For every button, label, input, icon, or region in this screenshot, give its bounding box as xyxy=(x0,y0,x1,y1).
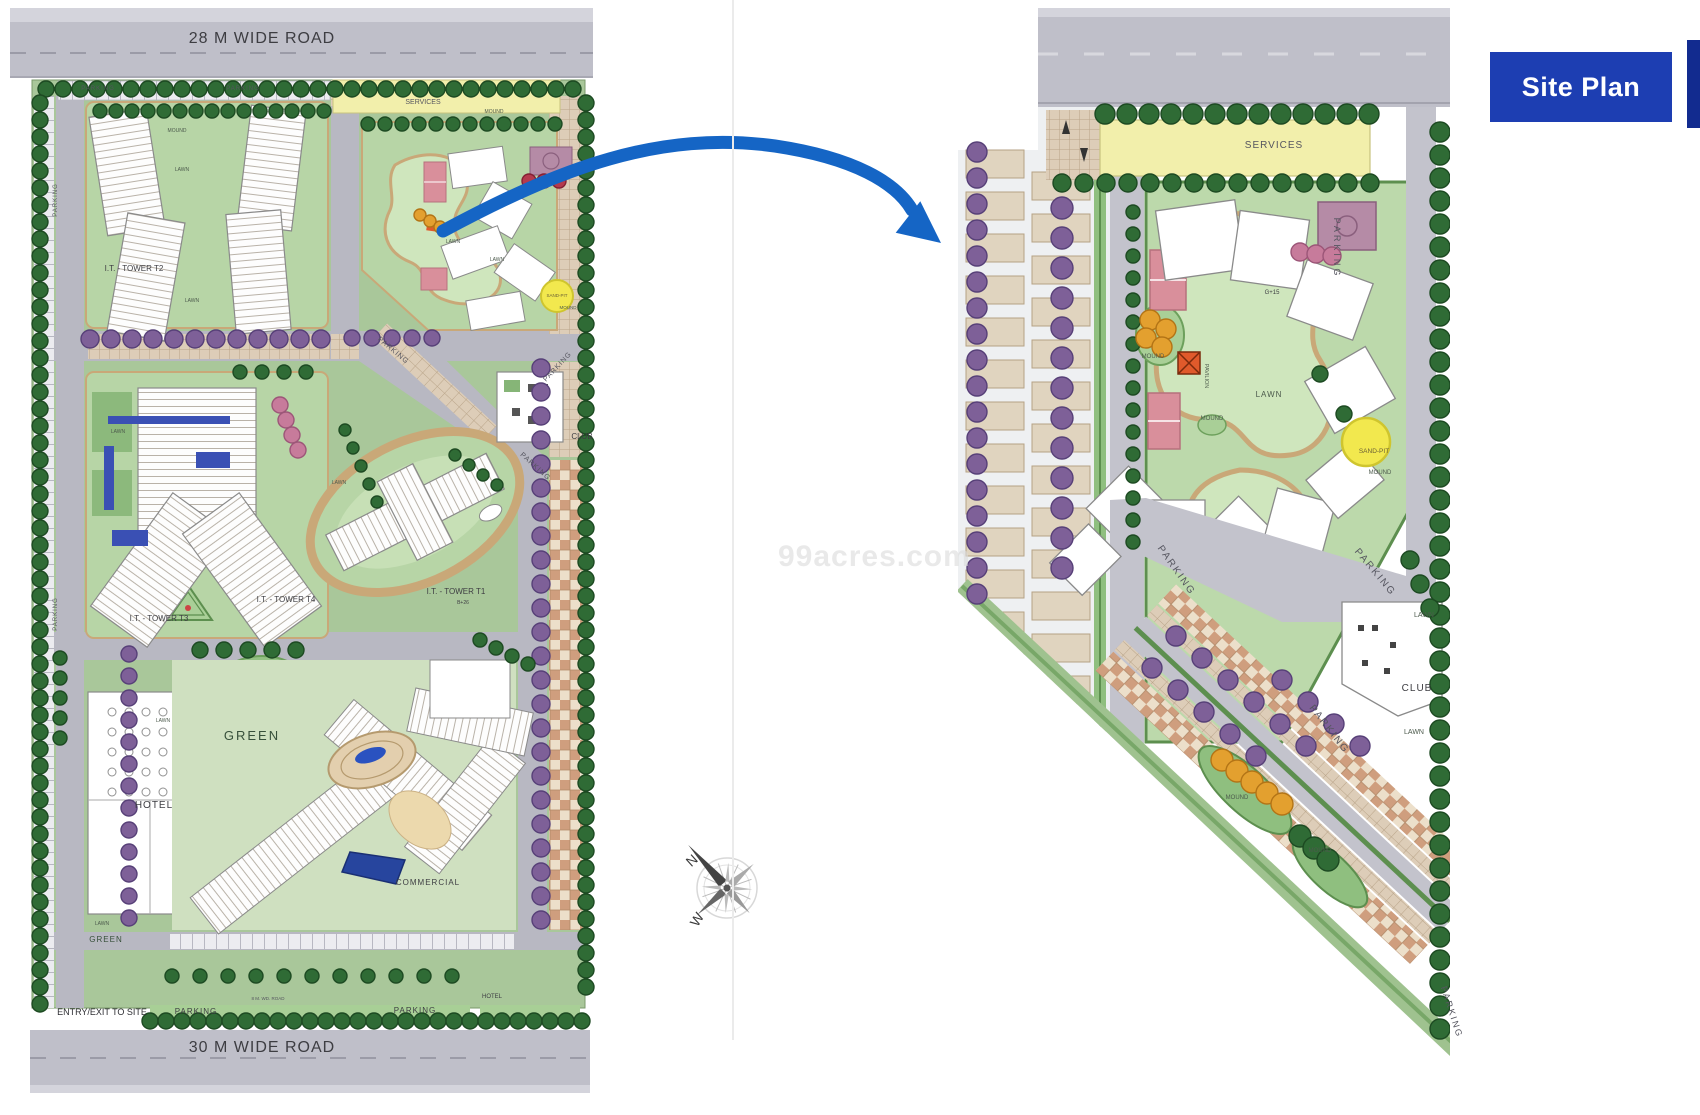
tree-icon xyxy=(1411,575,1429,593)
tree-icon xyxy=(1430,168,1450,188)
basketball-court xyxy=(1318,202,1376,250)
tree-icon xyxy=(395,81,411,97)
tree-icon xyxy=(121,866,137,882)
tree-icon xyxy=(967,246,987,266)
tree-icon xyxy=(53,671,67,685)
tree-icon xyxy=(1168,680,1188,700)
tree-icon xyxy=(32,877,48,893)
tree-icon xyxy=(347,442,359,454)
tree-icon xyxy=(221,969,235,983)
tree-icon xyxy=(531,81,547,97)
map-label: SERVICES xyxy=(1245,140,1303,151)
tree-icon xyxy=(1218,670,1238,690)
tree-icon xyxy=(1271,793,1293,815)
map-label: CLUB xyxy=(1402,683,1433,694)
tree-icon xyxy=(32,231,48,247)
tree-icon xyxy=(532,767,550,785)
tree-icon xyxy=(578,282,594,298)
tree-icon xyxy=(32,163,48,179)
tree-icon xyxy=(310,81,326,97)
tree-icon xyxy=(32,996,48,1012)
tree-icon xyxy=(463,459,475,471)
commercial-complex xyxy=(172,660,533,934)
tree-icon xyxy=(32,588,48,604)
tree-icon xyxy=(395,117,409,131)
table-icon xyxy=(142,748,150,756)
tree-icon xyxy=(318,1013,334,1029)
tree-icon xyxy=(532,407,550,425)
tree-icon xyxy=(32,401,48,417)
tree-icon xyxy=(1430,122,1450,142)
tree-icon xyxy=(253,104,267,118)
tree-icon xyxy=(1246,746,1266,766)
tree-icon xyxy=(417,969,431,983)
tree-icon xyxy=(270,1013,286,1029)
tree-icon xyxy=(123,330,141,348)
tree-icon xyxy=(967,480,987,500)
tree-icon xyxy=(967,324,987,344)
tree-icon xyxy=(189,104,203,118)
tree-icon xyxy=(491,479,503,491)
tree-icon xyxy=(312,330,330,348)
tree-icon xyxy=(32,520,48,536)
tree-icon xyxy=(1126,271,1140,285)
map-label: LAWN xyxy=(490,257,505,263)
tree-icon xyxy=(514,81,530,97)
tree-icon xyxy=(1117,104,1137,124)
tree-icon xyxy=(238,1013,254,1029)
tree-icon xyxy=(578,112,594,128)
tree-icon xyxy=(237,104,251,118)
tree-icon xyxy=(578,299,594,315)
tree-icon xyxy=(32,656,48,672)
tree-icon xyxy=(578,894,594,910)
tree-icon xyxy=(366,1013,382,1029)
tree-icon xyxy=(32,928,48,944)
tree-icon xyxy=(32,979,48,995)
tree-icon xyxy=(532,551,550,569)
tree-icon xyxy=(565,81,581,97)
tree-icon xyxy=(578,639,594,655)
table-icon xyxy=(108,728,116,736)
tree-icon xyxy=(290,442,306,458)
tree-icon xyxy=(186,330,204,348)
tree-icon xyxy=(32,180,48,196)
tree-icon xyxy=(1126,315,1140,329)
tree-icon xyxy=(548,81,564,97)
tree-icon xyxy=(32,724,48,740)
tree-icon xyxy=(1430,536,1450,556)
tree-icon xyxy=(1430,352,1450,372)
tree-icon xyxy=(429,81,445,97)
tree-icon xyxy=(1430,559,1450,579)
tree-icon xyxy=(578,316,594,332)
map-label: W xyxy=(686,909,707,929)
tree-icon xyxy=(578,724,594,740)
map-label: PARKING xyxy=(53,597,59,631)
tree-icon xyxy=(378,117,392,131)
map-label: PARKING xyxy=(53,183,59,217)
tree-icon xyxy=(404,330,420,346)
tree-icon xyxy=(288,642,304,658)
tree-icon xyxy=(1053,174,1071,192)
club-building xyxy=(497,372,563,442)
tree-icon xyxy=(1163,174,1181,192)
tree-icon xyxy=(578,775,594,791)
map-label: LAWN xyxy=(1404,729,1424,736)
tree-icon xyxy=(578,401,594,417)
tree-icon xyxy=(216,642,232,658)
tree-icon xyxy=(333,969,347,983)
tree-icon xyxy=(1220,724,1240,744)
master-plan: 28 M WIDE ROAD30 M WIDE ROADPARKINGPARKI… xyxy=(10,8,594,1093)
tree-icon xyxy=(291,330,309,348)
tree-icon xyxy=(1350,736,1370,756)
tree-icon xyxy=(389,969,403,983)
tree-icon xyxy=(532,839,550,857)
tree-icon xyxy=(1337,104,1357,124)
tree-icon xyxy=(578,656,594,672)
tree-icon xyxy=(141,104,155,118)
tree-icon xyxy=(192,642,208,658)
tree-icon xyxy=(967,376,987,396)
map-label: I.T. - TOWER T1 xyxy=(427,587,486,596)
tree-icon xyxy=(578,350,594,366)
site-plan-badge-label: Site Plan xyxy=(1522,72,1641,103)
tree-icon xyxy=(1430,191,1450,211)
tree-icon xyxy=(578,248,594,264)
tree-icon xyxy=(32,435,48,451)
map-label: PARKING xyxy=(81,86,115,92)
tree-icon xyxy=(446,1013,462,1029)
tree-icon xyxy=(578,741,594,757)
tree-icon xyxy=(967,428,987,448)
table-icon xyxy=(159,748,167,756)
tree-icon xyxy=(1359,104,1379,124)
tree-icon xyxy=(578,367,594,383)
tree-icon xyxy=(174,81,190,97)
tree-icon xyxy=(1430,766,1450,786)
map-label: GREEN xyxy=(224,728,280,743)
services-zone xyxy=(1100,120,1370,176)
tree-icon xyxy=(1430,398,1450,418)
tree-icon xyxy=(578,979,594,995)
tree-icon xyxy=(121,712,137,728)
tree-icon xyxy=(32,95,48,111)
tree-icon xyxy=(1205,104,1225,124)
tree-icon xyxy=(123,81,139,97)
tree-icon xyxy=(1430,927,1450,947)
tree-icon xyxy=(578,758,594,774)
tree-icon xyxy=(412,81,428,97)
tree-icon xyxy=(284,427,300,443)
tree-icon xyxy=(532,791,550,809)
tree-icon xyxy=(121,756,137,772)
tree-icon xyxy=(1227,104,1247,124)
tree-icon xyxy=(446,81,462,97)
map-label: PARKING xyxy=(175,1007,217,1016)
tree-icon xyxy=(1430,720,1450,740)
tree-icon xyxy=(463,81,479,97)
tree-icon xyxy=(967,298,987,318)
tree-icon xyxy=(293,81,309,97)
tree-icon xyxy=(121,734,137,750)
tree-icon xyxy=(1126,205,1140,219)
tree-icon xyxy=(254,1013,270,1029)
map-label: LAWN xyxy=(1256,390,1283,399)
tree-icon xyxy=(1161,104,1181,124)
tree-icon xyxy=(430,1013,446,1029)
tree-icon xyxy=(532,719,550,737)
tree-icon xyxy=(32,673,48,689)
tree-icon xyxy=(1271,104,1291,124)
tree-icon xyxy=(1051,437,1073,459)
tree-icon xyxy=(109,104,123,118)
site-plan-badge-edge xyxy=(1687,40,1700,128)
tree-icon xyxy=(32,571,48,587)
tree-icon xyxy=(1051,377,1073,399)
tree-icon xyxy=(1126,227,1140,241)
tree-icon xyxy=(480,117,494,131)
tree-icon xyxy=(1312,366,1328,382)
tree-icon xyxy=(1430,904,1450,924)
tree-icon xyxy=(1051,257,1073,279)
tree-icon xyxy=(32,775,48,791)
tree-icon xyxy=(363,478,375,490)
tree-icon xyxy=(1430,306,1450,326)
tree-icon xyxy=(1336,406,1352,422)
table-icon xyxy=(142,788,150,796)
tree-icon xyxy=(578,962,594,978)
tree-icon xyxy=(578,826,594,842)
tree-icon xyxy=(157,81,173,97)
map-label: LAWN xyxy=(332,480,347,486)
tree-icon xyxy=(1051,527,1073,549)
tree-icon xyxy=(32,826,48,842)
tree-icon xyxy=(1430,237,1450,257)
map-label: MOUND xyxy=(1309,848,1332,854)
tree-icon xyxy=(1430,375,1450,395)
tree-icon xyxy=(207,330,225,348)
tree-icon xyxy=(102,330,120,348)
tree-icon xyxy=(361,969,375,983)
tree-icon xyxy=(1430,743,1450,763)
tree-icon xyxy=(121,888,137,904)
tree-icon xyxy=(32,112,48,128)
tree-icon xyxy=(228,330,246,348)
tree-icon xyxy=(532,743,550,761)
tree-icon xyxy=(1430,789,1450,809)
tree-icon xyxy=(1244,692,1264,712)
tree-icon xyxy=(1272,670,1292,690)
tree-icon xyxy=(240,642,256,658)
tree-icon xyxy=(578,707,594,723)
tree-icon xyxy=(1051,197,1073,219)
tree-icon xyxy=(222,1013,238,1029)
tree-icon xyxy=(299,365,313,379)
tree-icon xyxy=(53,731,67,745)
tree-icon xyxy=(302,1013,318,1029)
tree-icon xyxy=(1430,214,1450,234)
map-label: MOUND xyxy=(560,305,578,310)
sand-pit xyxy=(1342,418,1390,466)
tree-icon xyxy=(1126,425,1140,439)
map-label: N xyxy=(683,851,701,870)
tree-icon xyxy=(532,911,550,929)
tree-icon xyxy=(350,1013,366,1029)
map-label: LAWN xyxy=(1414,612,1434,619)
map-label: PARKING xyxy=(226,86,260,92)
tree-icon xyxy=(121,668,137,684)
tree-icon xyxy=(121,646,137,662)
tree-icon xyxy=(32,962,48,978)
tree-icon xyxy=(578,911,594,927)
tree-icon xyxy=(967,584,987,604)
tree-icon xyxy=(1430,490,1450,510)
tree-icon xyxy=(578,571,594,587)
tree-icon xyxy=(578,877,594,893)
tree-icon xyxy=(301,104,315,118)
tree-icon xyxy=(32,503,48,519)
tree-icon xyxy=(578,945,594,961)
tree-icon xyxy=(1126,293,1140,307)
tree-icon xyxy=(32,741,48,757)
compass-rose-icon xyxy=(658,821,776,940)
tree-icon xyxy=(578,265,594,281)
site-plan-page: 28 M WIDE ROAD30 M WIDE ROADPARKINGPARKI… xyxy=(0,0,1700,1110)
table-icon xyxy=(159,788,167,796)
parking-bay xyxy=(1032,592,1090,620)
table-icon xyxy=(108,788,116,796)
map-label: 28 M WIDE ROAD xyxy=(189,30,335,47)
tree-icon xyxy=(339,424,351,436)
tree-icon xyxy=(140,81,156,97)
map-label: LAWN xyxy=(175,167,190,173)
tree-icon xyxy=(249,330,267,348)
tree-icon xyxy=(558,1013,574,1029)
tree-icon xyxy=(967,454,987,474)
tree-icon xyxy=(578,469,594,485)
tree-icon xyxy=(548,117,562,131)
enlarged-plan xyxy=(952,8,1490,1062)
tree-icon xyxy=(53,651,67,665)
map-label: HOTEL xyxy=(482,994,503,1000)
tree-icon xyxy=(1051,497,1073,519)
tree-icon xyxy=(1430,444,1450,464)
tree-icon xyxy=(32,792,48,808)
map-label: SAND-PIT xyxy=(1359,448,1389,455)
tree-icon xyxy=(1430,674,1450,694)
tree-icon xyxy=(505,649,519,663)
watermark: 99acres.com xyxy=(778,540,971,574)
tree-icon xyxy=(578,809,594,825)
tree-icon xyxy=(463,117,477,131)
tree-icon xyxy=(578,214,594,230)
map-label: GREEN xyxy=(89,935,122,944)
tree-icon xyxy=(1430,467,1450,487)
tree-icon xyxy=(32,265,48,281)
tree-icon xyxy=(578,503,594,519)
tree-icon xyxy=(1430,835,1450,855)
tree-icon xyxy=(578,792,594,808)
tree-icon xyxy=(1075,174,1093,192)
tree-icon xyxy=(445,969,459,983)
tree-icon xyxy=(32,129,48,145)
tree-icon xyxy=(414,1013,430,1029)
table-icon xyxy=(142,728,150,736)
tree-icon xyxy=(1126,535,1140,549)
map-label: B+26 xyxy=(457,600,469,606)
tree-icon xyxy=(32,299,48,315)
tree-icon xyxy=(1430,329,1450,349)
tree-icon xyxy=(32,384,48,400)
road-28m xyxy=(10,8,593,22)
tree-icon xyxy=(361,117,375,131)
tree-icon xyxy=(1126,491,1140,505)
tree-icon xyxy=(32,554,48,570)
tree-icon xyxy=(510,1013,526,1029)
tree-icon xyxy=(967,142,987,162)
tree-icon xyxy=(478,1013,494,1029)
tree-icon xyxy=(121,910,137,926)
tree-icon xyxy=(32,333,48,349)
map-label: HOTEL xyxy=(135,800,173,811)
tree-icon xyxy=(532,671,550,689)
tree-icon xyxy=(32,418,48,434)
tree-icon xyxy=(165,330,183,348)
table-icon xyxy=(142,708,150,716)
tree-icon xyxy=(521,657,535,671)
tree-icon xyxy=(967,350,987,370)
map-label: MOUND xyxy=(1201,416,1224,422)
tree-icon xyxy=(967,194,987,214)
tree-icon xyxy=(121,844,137,860)
tree-icon xyxy=(514,117,528,131)
tree-icon xyxy=(32,537,48,553)
tree-icon xyxy=(1430,812,1450,832)
pavilion xyxy=(1178,352,1200,374)
tree-icon xyxy=(578,486,594,502)
page-fold-line xyxy=(732,0,734,1040)
map-label: LAWN xyxy=(185,298,200,304)
tree-icon xyxy=(272,397,288,413)
map-label: ENTRY/EXIT TO SITE xyxy=(57,1007,147,1017)
table-icon xyxy=(159,728,167,736)
table-icon xyxy=(108,768,116,776)
tree-icon xyxy=(317,104,331,118)
tree-icon xyxy=(578,605,594,621)
tree-icon xyxy=(1430,881,1450,901)
tree-icon xyxy=(1361,174,1379,192)
tree-icon xyxy=(277,969,291,983)
tree-icon xyxy=(1430,1019,1450,1039)
tree-icon xyxy=(221,104,235,118)
tree-icon xyxy=(249,969,263,983)
map-label: 8 M. WD. ROAD xyxy=(251,996,285,1001)
tree-icon xyxy=(532,383,550,401)
tree-icon xyxy=(264,642,280,658)
tree-icon xyxy=(32,911,48,927)
map-label: PARKING xyxy=(394,1006,436,1015)
tree-icon xyxy=(526,1013,542,1029)
tree-icon xyxy=(1315,104,1335,124)
tree-icon xyxy=(1051,227,1073,249)
tree-icon xyxy=(121,690,137,706)
tree-icon xyxy=(355,460,367,472)
tree-icon xyxy=(1430,628,1450,648)
table-icon xyxy=(159,708,167,716)
tree-icon xyxy=(578,180,594,196)
